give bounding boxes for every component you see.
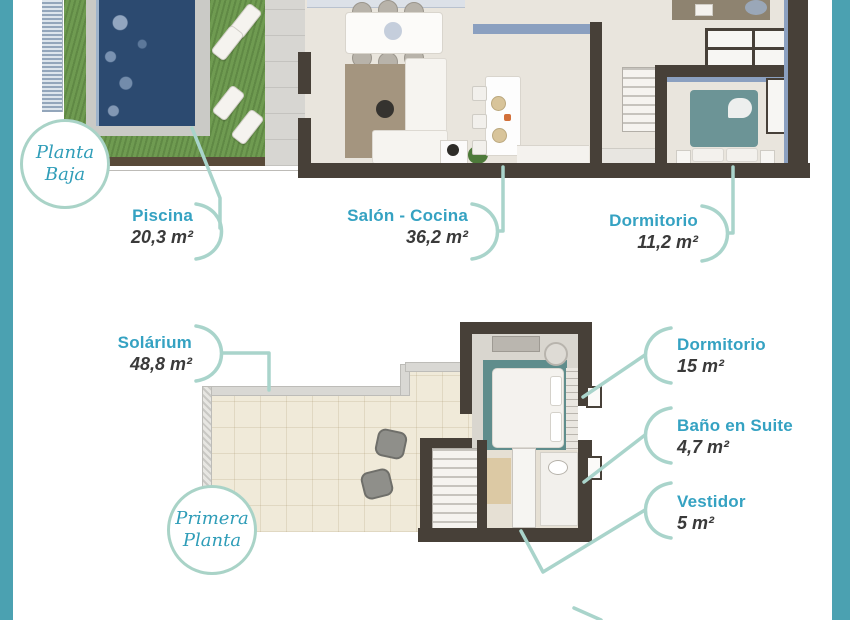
dormitorio-pb-arc: [702, 206, 728, 261]
dormitorio-pb-leader-line: [728, 167, 733, 233]
salon-leader-line: [498, 167, 503, 231]
bano-arc: [646, 408, 672, 463]
piscina-arc: [196, 204, 222, 259]
room-area: 11,2 m²: [590, 231, 698, 254]
label-dormitorio-pb: Dormitorio 11,2 m²: [590, 211, 698, 253]
label-vestidor: Vestidor 5 m²: [677, 492, 807, 534]
vestidor-leader-line: [521, 510, 645, 572]
badge-primera-planta: Primera Planta: [167, 485, 257, 575]
room-name: Dormitorio: [677, 335, 827, 355]
vestidor-arc: [646, 483, 672, 538]
bano-leader-line: [584, 435, 645, 482]
dormitorio-p1-arc: [646, 328, 672, 383]
cutoff-leader-line: [574, 608, 601, 620]
room-area: 5 m²: [677, 512, 807, 535]
room-name: Salón - Cocina: [330, 206, 468, 226]
room-area: 15 m²: [677, 355, 827, 378]
room-name: Solárium: [86, 333, 192, 353]
badge-line: Planta: [183, 530, 241, 552]
badge-line: Planta: [36, 142, 94, 164]
solarium-arc: [196, 326, 222, 381]
room-name: Vestidor: [677, 492, 807, 512]
room-name: Piscina: [80, 206, 193, 226]
room-area: 20,3 m²: [80, 226, 193, 249]
dormitorio-p1-leader-line: [583, 355, 645, 397]
label-dormitorio-p1: Dormitorio 15 m²: [677, 335, 827, 377]
label-solarium: Solárium 48,8 m²: [86, 333, 192, 375]
room-name: Dormitorio: [590, 211, 698, 231]
badge-line: Baja: [45, 164, 85, 186]
salon-arc: [472, 204, 498, 259]
floorplan-page: Piscina 20,3 m² Salón - Cocina 36,2 m² D…: [0, 0, 850, 620]
room-area: 48,8 m²: [86, 353, 192, 376]
room-area: 4,7 m²: [677, 436, 832, 459]
room-area: 36,2 m²: [330, 226, 468, 249]
room-name: Baño en Suite: [677, 416, 832, 436]
label-bano-en-suite: Baño en Suite 4,7 m²: [677, 416, 832, 458]
label-piscina: Piscina 20,3 m²: [80, 206, 193, 248]
label-salon-cocina: Salón - Cocina 36,2 m²: [330, 206, 468, 248]
badge-line: Primera: [175, 508, 249, 530]
solarium-leader-line: [222, 353, 269, 390]
badge-planta-baja: Planta Baja: [20, 119, 110, 209]
